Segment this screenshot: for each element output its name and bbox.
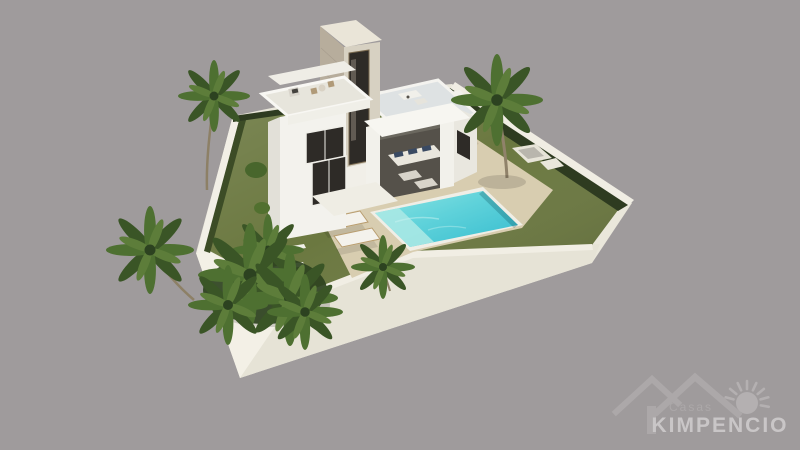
villa-render-image: Casas KIMPENCIO — [0, 0, 800, 450]
terrace-chair — [310, 87, 317, 94]
palm-tree — [178, 60, 250, 132]
brand-text-large: KIMPENCIO — [651, 414, 788, 437]
left-block — [268, 104, 346, 242]
bush — [254, 202, 270, 214]
palm-tree — [106, 206, 194, 294]
brand-text-small: Casas — [669, 400, 713, 414]
bush — [245, 162, 267, 178]
palm-tree — [267, 274, 343, 350]
palm-tree — [188, 265, 268, 345]
terrace-table — [319, 85, 326, 92]
terrace-chair — [327, 80, 334, 87]
palm-tree — [451, 54, 543, 146]
villa-render-canvas: Casas KIMPENCIO — [0, 0, 800, 450]
palm-tree — [351, 235, 415, 299]
